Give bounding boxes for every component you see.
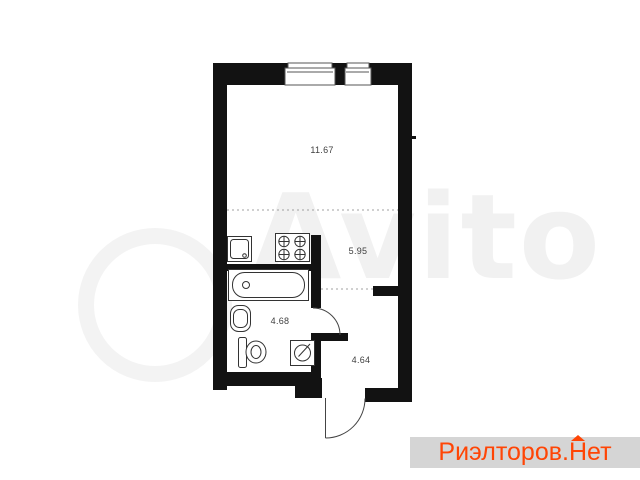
area-label-bathroom: 4.68 — [271, 316, 290, 326]
floor-plan-drawing — [0, 0, 640, 480]
bathroom-door-arc — [313, 308, 340, 335]
area-label-kitchen: 5.95 — [349, 246, 368, 256]
area-label-hallway: 4.64 — [352, 355, 371, 365]
bathtub-icon — [229, 270, 309, 301]
roof-icon — [571, 435, 585, 441]
washbasin-icon — [231, 306, 251, 332]
badge-text-part2: Н — [569, 438, 587, 466]
badge-text-part3: ет — [587, 440, 612, 465]
agency-badge: Риэлторов.Нет — [410, 437, 640, 468]
area-label-living-room: 11.67 — [310, 145, 333, 155]
toilet-icon — [239, 338, 267, 368]
stove-icon — [276, 234, 310, 262]
badge-text-part1: Риэлторов. — [438, 440, 569, 465]
washing-machine-icon — [291, 341, 315, 366]
floor-plan-page: Avito — [0, 0, 640, 480]
kitchen-sink-icon — [228, 237, 252, 262]
entrance-door-arc — [326, 398, 366, 438]
window-icon — [285, 63, 371, 85]
